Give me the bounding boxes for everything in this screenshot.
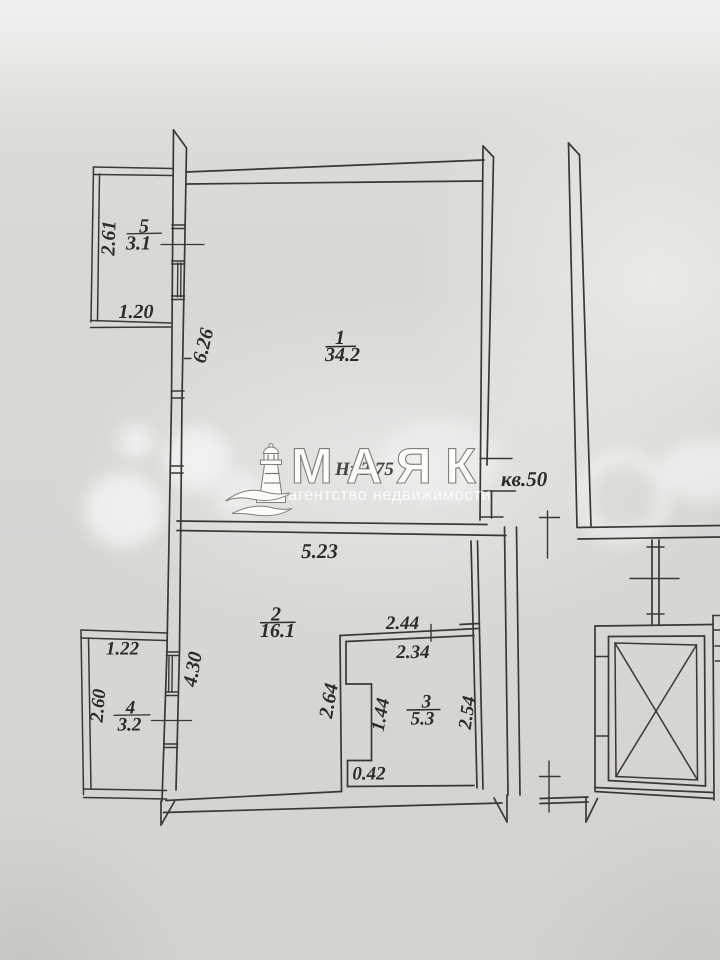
- svg-text:3.1: 3.1: [125, 233, 151, 255]
- svg-text:2.44: 2.44: [385, 613, 419, 634]
- svg-text:2.54: 2.54: [455, 695, 481, 732]
- svg-text:кв.50: кв.50: [501, 467, 548, 491]
- svg-text:4.30: 4.30: [179, 650, 207, 689]
- svg-text:5.3: 5.3: [411, 709, 435, 730]
- svg-text:2.60: 2.60: [87, 688, 111, 724]
- svg-text:1.22: 1.22: [106, 639, 140, 660]
- svg-text:2.34: 2.34: [395, 642, 429, 663]
- svg-text:0.42: 0.42: [352, 764, 386, 785]
- svg-text:2.61: 2.61: [97, 220, 120, 257]
- svg-text:3.2: 3.2: [117, 715, 142, 736]
- svg-text:5.23: 5.23: [301, 539, 338, 563]
- svg-text:2.64: 2.64: [315, 682, 343, 721]
- svg-text:1.44: 1.44: [368, 696, 394, 732]
- svg-text:6.26: 6.26: [189, 326, 219, 365]
- svg-text:агентство недвижимости: агентство недвижимости: [288, 486, 491, 504]
- svg-text:1.20: 1.20: [119, 301, 154, 323]
